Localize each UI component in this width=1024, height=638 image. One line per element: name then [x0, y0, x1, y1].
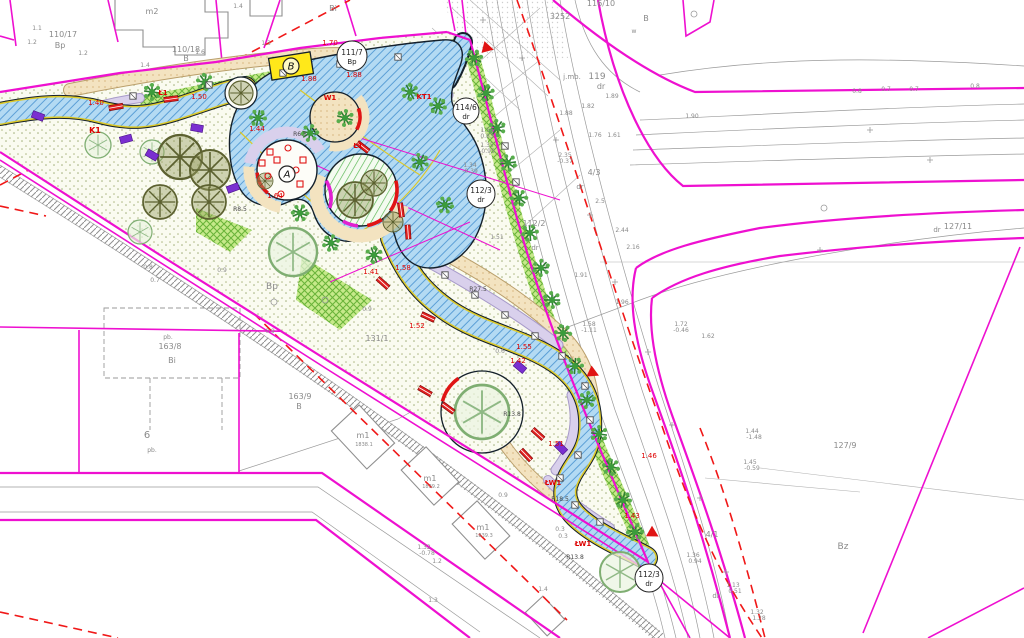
map-text-label: pb.	[163, 334, 173, 341]
bin-icon	[442, 272, 448, 278]
map-text-label: 1.2	[78, 50, 88, 57]
map-text-label: 1.82	[581, 103, 595, 110]
map-text-label: 163/8	[158, 342, 181, 351]
map-text-label: 4/3	[588, 168, 601, 177]
map-text-label: 0.7	[881, 86, 891, 93]
map-text-label: 1.51	[490, 234, 504, 241]
map-text-label: -0.59	[744, 465, 760, 472]
site-plan-drawing: 111/7Bp114/6dr112/3dr112/3dr AB 110/17Bp…	[0, 0, 1024, 638]
map-text-label: dr	[933, 226, 940, 234]
map-text-label: Ł1	[157, 89, 167, 97]
map-text-label: R13.8	[566, 554, 584, 561]
map-text-label: dr	[531, 244, 538, 252]
map-text-label: B	[643, 14, 649, 23]
bin-icon	[572, 502, 578, 508]
map-text-label: 0.7	[150, 277, 160, 284]
map-text-label: Ł1	[352, 142, 362, 150]
map-text-label: pb.	[147, 447, 157, 454]
map-text-label: 4/1	[706, 530, 719, 539]
map-text-label: 0.8	[852, 88, 862, 95]
map-text-label: 0.9	[362, 306, 372, 313]
existing-tree-icon	[85, 132, 111, 158]
map-text-label: Bi	[329, 4, 337, 13]
area-letter-label: B	[288, 62, 295, 73]
map-text-label: 0.9	[217, 267, 227, 274]
map-text-label: -0.95	[479, 148, 495, 155]
map-text-label: 0.6	[495, 348, 505, 355]
bin-icon	[597, 519, 603, 525]
map-text-label: 0.9	[498, 492, 508, 499]
map-text-label: -0.39	[462, 168, 478, 175]
bench-icon	[405, 225, 411, 239]
bin-icon	[206, 82, 212, 88]
map-text-label: 1.42	[510, 357, 526, 365]
existing-tree-icon	[128, 220, 152, 244]
map-text-label: 1.4	[140, 62, 150, 69]
map-text-label: 1.64	[267, 192, 283, 200]
bin-icon	[575, 452, 581, 458]
map-text-label: 1838.1	[355, 442, 373, 448]
map-text-label: 2.44	[615, 227, 629, 234]
map-text-label: 1.1	[32, 25, 42, 32]
map-text-label: 1.76	[588, 132, 602, 139]
olive-tree-icon	[190, 150, 230, 190]
map-text-label: 0.9	[265, 328, 275, 335]
existing-tree-icon	[455, 385, 509, 439]
map-text-label: W1	[324, 94, 337, 102]
map-text-label: 1.88	[559, 110, 573, 117]
map-text-label: 1.96	[615, 299, 629, 306]
map-text-label: K1	[89, 126, 101, 135]
map-text-label: R18.5	[551, 496, 569, 503]
map-text-label: 0.51	[728, 588, 742, 595]
map-text-label: 1.51	[548, 440, 564, 448]
bin-icon	[582, 383, 588, 389]
map-text-label: -1.11	[581, 327, 597, 334]
map-text-label: 0.7	[909, 86, 919, 93]
parcel-number-label: 114/6	[455, 103, 477, 112]
map-text-label: -1.48	[746, 434, 762, 441]
map-text-label: 1.46	[641, 452, 657, 460]
map-text-label: 1.91	[574, 272, 588, 279]
map-text-label: 1.2	[432, 558, 442, 565]
parcel-use-label: dr	[645, 580, 652, 588]
map-text-label: 0.83	[480, 133, 494, 140]
map-text-label: Bp	[266, 282, 278, 292]
map-text-label: 1.40	[88, 99, 104, 107]
map-text-label: 6	[144, 430, 150, 441]
map-text-label: 2.5	[595, 198, 605, 205]
map-text-label: 0.94	[688, 558, 702, 565]
map-text-label: B	[296, 402, 302, 411]
map-text-label: 3252	[550, 12, 570, 21]
bin-icon	[559, 353, 565, 359]
map-text-label: 1.44	[249, 125, 265, 133]
map-text-label: Bi	[168, 356, 176, 365]
parcel-number-label: 112/3	[470, 186, 492, 195]
map-text-label: 119	[588, 72, 605, 82]
map-text-label: 1.55	[516, 343, 532, 351]
map-text-label: 1.3	[428, 597, 438, 604]
site-plan-canvas: 111/7Bp114/6dr112/3dr112/3dr AB 110/17Bp…	[0, 0, 1024, 638]
map-text-label: 163/9	[288, 392, 311, 401]
map-text-label: Bz	[838, 542, 849, 552]
bin-icon	[130, 93, 136, 99]
map-text-label: 1.90	[685, 113, 699, 120]
map-text-label: 1.41	[363, 268, 379, 276]
parcel-use-label: dr	[462, 113, 469, 121]
existing-tree-icon	[269, 228, 317, 276]
map-text-label: -0.46	[673, 327, 689, 334]
map-text-label: 1.62	[701, 333, 715, 340]
map-text-label: 0.8	[970, 83, 980, 90]
olive-tree-icon	[361, 170, 387, 196]
bin-icon	[587, 417, 593, 423]
map-text-label: 0.3	[555, 526, 565, 533]
bin-icon	[502, 143, 508, 149]
map-text-label: m2	[146, 7, 159, 16]
bin-icon	[532, 333, 538, 339]
map-text-label: 1839.2	[422, 484, 440, 490]
bin-icon	[502, 312, 508, 318]
olive-tree-icon	[229, 81, 253, 105]
map-text-label: -0.78	[419, 550, 435, 557]
map-text-label: R6.5	[293, 131, 307, 138]
map-text-label: 1.61	[607, 132, 621, 139]
map-text-label: 1.88	[346, 71, 362, 79]
map-text-label: -0.37	[557, 158, 573, 165]
map-text-label: 0.8	[143, 264, 153, 271]
map-text-label: 1.70	[322, 39, 338, 47]
map-text-label: 1.58	[395, 264, 411, 272]
map-text-label: 1.4	[538, 586, 548, 593]
existing-tree-icon	[600, 552, 640, 592]
olive-tree-icon	[143, 185, 177, 219]
map-text-label: 116/10	[587, 0, 615, 8]
map-text-label: 1.89	[605, 93, 619, 100]
bin-icon	[395, 54, 401, 60]
map-text-label: 1.88	[301, 75, 317, 83]
map-text-label: B	[183, 54, 189, 63]
map-text-label: 110/17	[49, 30, 77, 39]
parcel-use-label: dr	[477, 196, 484, 204]
parcel-number-label: 111/7	[341, 48, 363, 57]
map-text-label: 112/2	[522, 219, 545, 228]
map-text-label: dr	[597, 82, 606, 91]
map-text-label: R27.5	[469, 286, 487, 293]
map-text-label: 127/11	[944, 222, 972, 231]
area-letter-label: A	[283, 170, 291, 181]
olive-tree-icon	[192, 185, 226, 219]
map-text-label: 1839.3	[475, 533, 493, 539]
map-text-label: 0.3	[558, 533, 568, 540]
map-text-label: 127/9	[833, 441, 856, 450]
map-text-label: 2.16	[626, 244, 640, 251]
map-text-label: 1.52	[409, 322, 425, 330]
parcel-use-label: Bp	[347, 58, 357, 66]
parcel-number-label: 112/3	[638, 570, 660, 579]
map-text-label: w	[632, 28, 637, 35]
map-text-label: 1.4	[233, 3, 243, 10]
map-text-label: dr	[712, 592, 719, 600]
map-text-label: R13.8	[503, 411, 521, 418]
map-text-label: 1.2	[27, 39, 37, 46]
map-text-label: m1	[477, 523, 490, 532]
map-text-label: R8.5	[233, 206, 247, 213]
map-text-label: dr	[576, 183, 583, 191]
bin-icon	[513, 179, 519, 185]
map-text-label: ŁW1	[574, 540, 592, 548]
map-text-label: KT1	[416, 93, 431, 101]
map-text-label: m1	[357, 431, 370, 440]
map-text-label: 131/1	[365, 334, 388, 343]
map-text-label: Bp	[55, 41, 66, 50]
map-text-label: 1.43	[624, 512, 640, 520]
map-text-label: 1.50	[191, 93, 207, 101]
map-text-label: ŁW1	[544, 479, 562, 487]
map-text-label: 1.6	[195, 49, 205, 56]
map-text-label: j.mb.	[562, 73, 581, 81]
map-text-label: 1.3	[261, 40, 271, 47]
map-text-label: 1.28	[752, 615, 766, 622]
map-text-label: m1	[424, 474, 437, 483]
